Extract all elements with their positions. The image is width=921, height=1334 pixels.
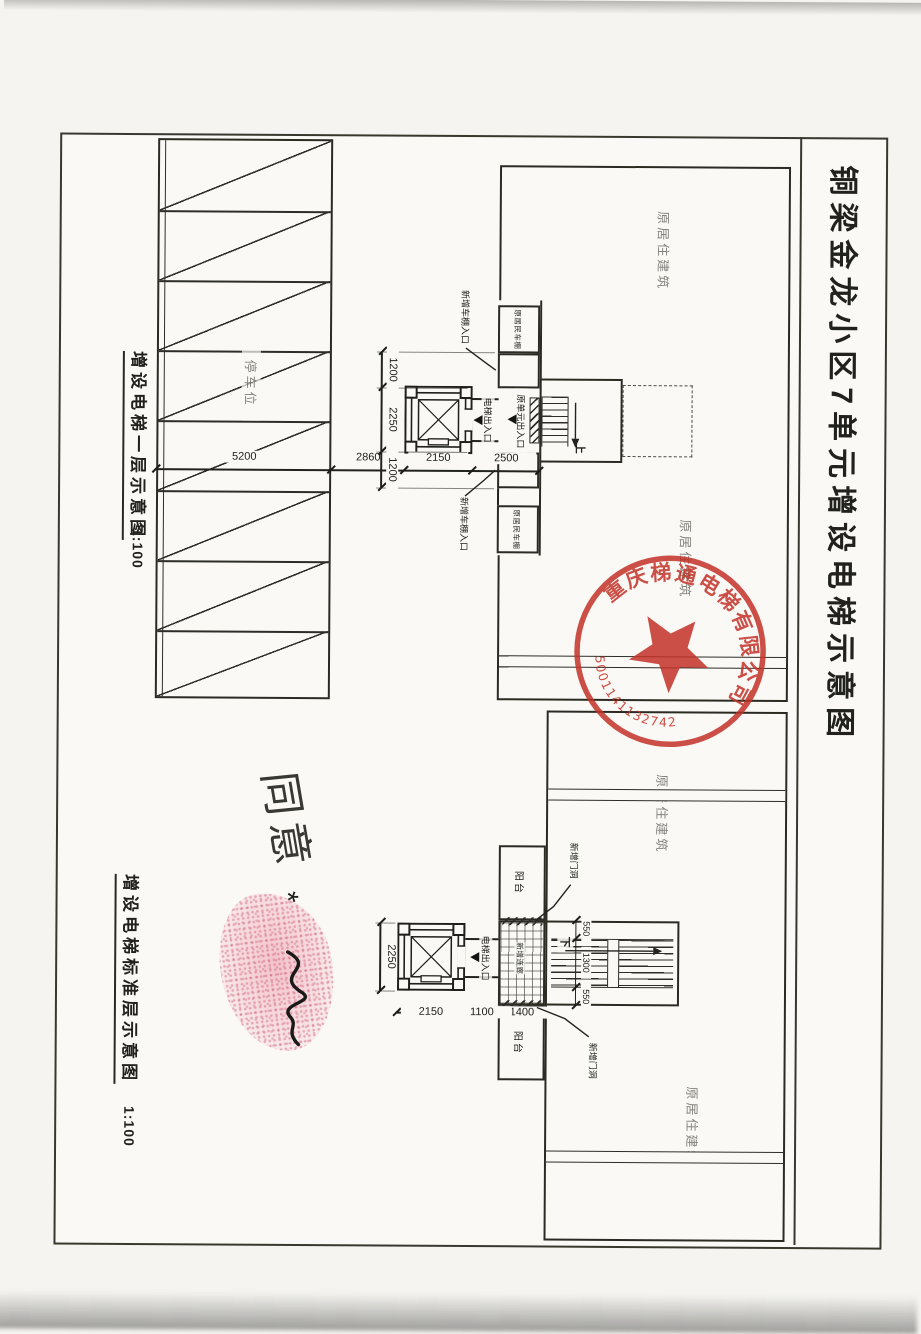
scan-edge-shadow-bottom: [0, 1290, 917, 1334]
leader-lines-overlay: [0, 0, 921, 1334]
scanned-sheet: 铜梁金龙小区7单元增设电梯示意图 原居住建筑 原居住建筑 原居民车棚 原居民车棚…: [0, 0, 921, 1331]
company-stamp: 重庆梯通电梯有限公司 5001141132742: [564, 546, 775, 757]
sheet-content: 铜梁金龙小区7单元增设电梯示意图 原居住建筑 原居住建筑 原居民车棚 原居民车棚…: [0, 0, 921, 1334]
